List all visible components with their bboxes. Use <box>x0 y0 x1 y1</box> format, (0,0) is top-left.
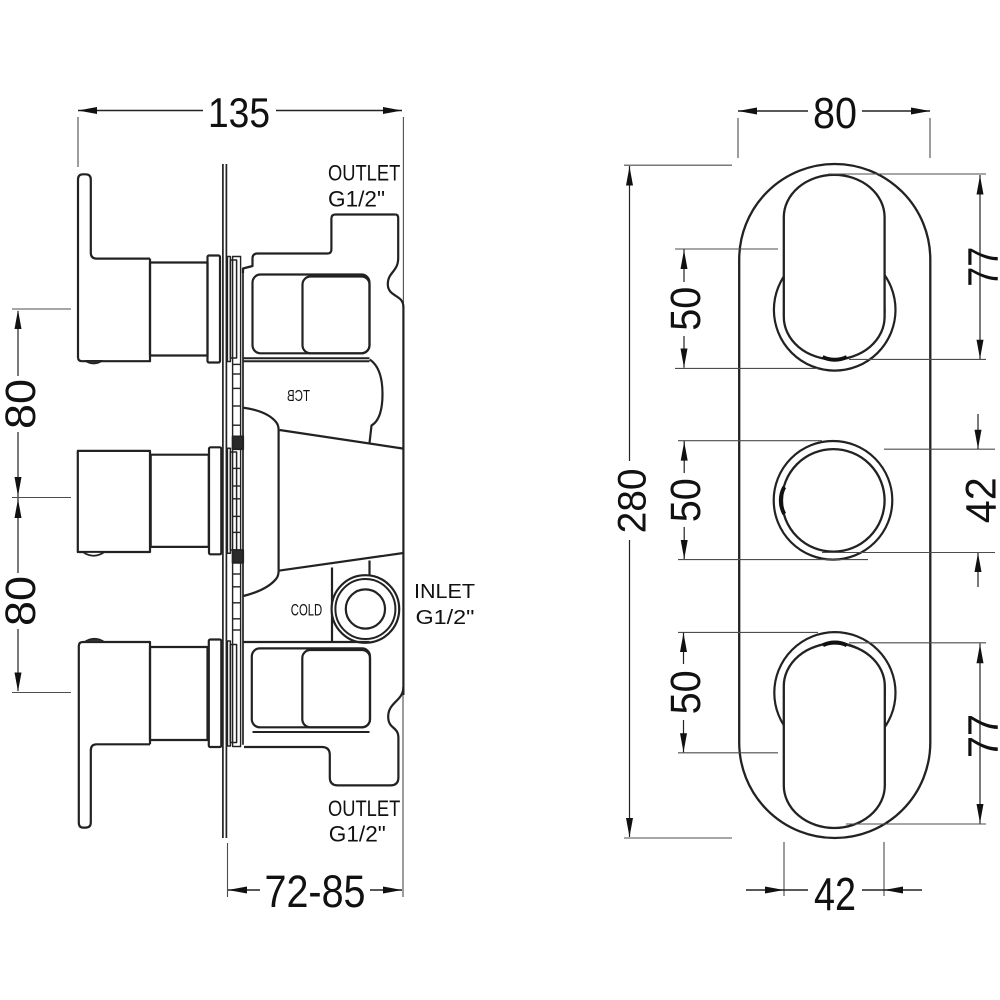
svg-text:INLET: INLET <box>414 580 475 603</box>
svg-text:50: 50 <box>662 670 710 714</box>
svg-text:77: 77 <box>960 714 1000 758</box>
svg-text:50: 50 <box>662 287 710 331</box>
svg-text:280: 280 <box>610 468 654 533</box>
svg-text:OUTLET: OUTLET <box>328 796 400 821</box>
svg-text:G1/2": G1/2" <box>329 821 386 846</box>
svg-text:135: 135 <box>208 89 270 136</box>
svg-text:TCB: TCB <box>287 388 310 405</box>
svg-text:80: 80 <box>0 379 45 429</box>
svg-text:OUTLET: OUTLET <box>328 160 400 185</box>
svg-text:72-85: 72-85 <box>265 866 366 917</box>
svg-text:COLD: COLD <box>291 602 323 620</box>
svg-text:G1/2": G1/2" <box>416 606 475 629</box>
svg-text:80: 80 <box>0 576 45 626</box>
svg-text:42: 42 <box>958 477 1000 523</box>
svg-text:G1/2": G1/2" <box>328 187 385 212</box>
svg-text:42: 42 <box>814 868 856 920</box>
svg-text:77: 77 <box>960 247 1000 287</box>
svg-text:50: 50 <box>662 478 710 522</box>
svg-text:80: 80 <box>813 89 857 138</box>
